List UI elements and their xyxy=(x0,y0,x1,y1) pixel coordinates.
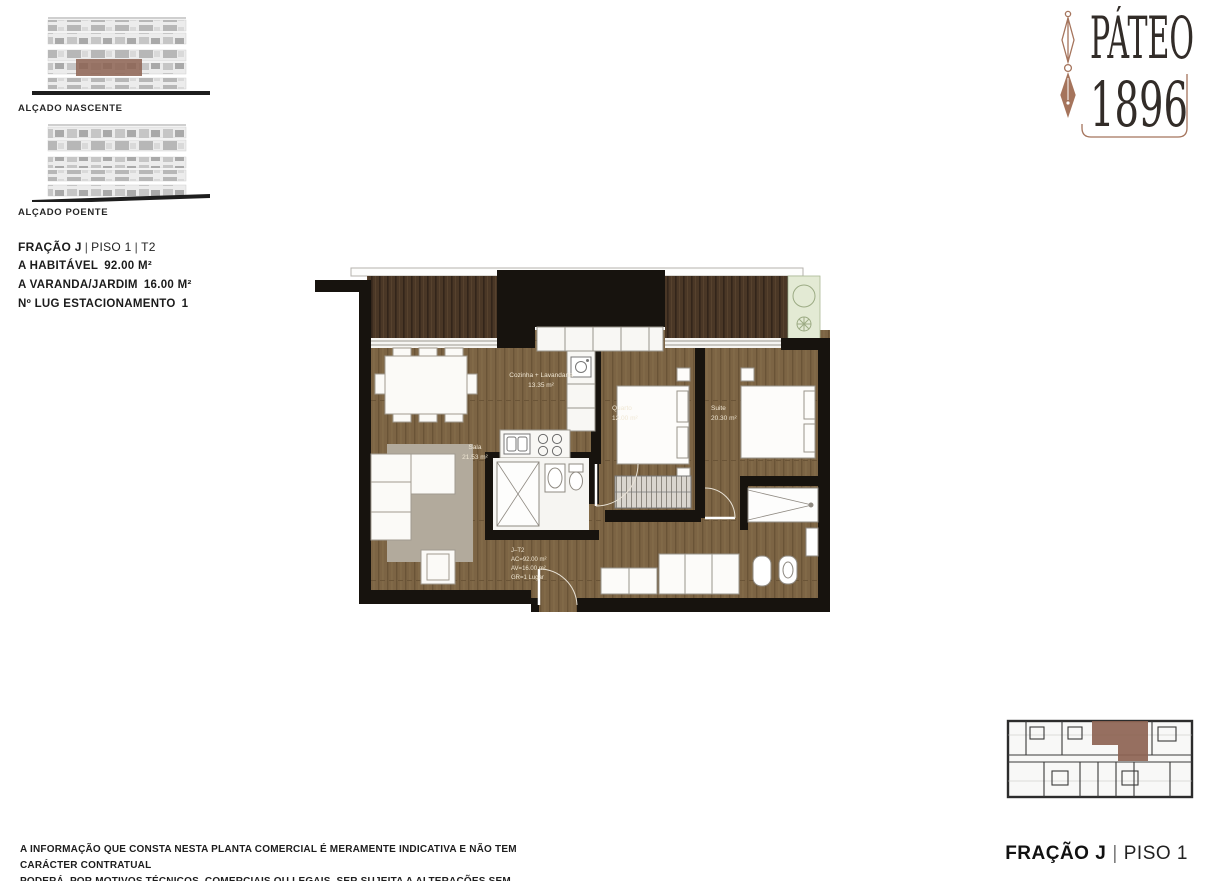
elevation-nascente-label: ALÇADO NASCENTE xyxy=(18,103,228,114)
suite-toilet-icon xyxy=(779,556,797,584)
floorplan-svg: Cozinha + Lavandaria 13.35 m² Sala 21.53… xyxy=(315,262,835,612)
chair xyxy=(375,374,385,394)
wardrobe xyxy=(615,476,691,508)
svg-text:GR=1 Lugar: GR=1 Lugar xyxy=(511,575,544,581)
room-area-bedroom: 12.00 m² xyxy=(612,415,638,422)
stat-parking: Nº LUG ESTACIONAMENTO1 xyxy=(18,295,192,314)
kitchen-sink-icon xyxy=(504,434,530,454)
sliding-door-living xyxy=(367,338,497,348)
svg-text:J–T2: J–T2 xyxy=(511,548,525,554)
svg-text:AC=92.00 m²: AC=92.00 m² xyxy=(511,557,547,563)
unit-floor: PISO 1 xyxy=(91,240,131,254)
elevation-poente-label: ALÇADO POENTE xyxy=(18,207,228,218)
deck-right xyxy=(665,276,788,344)
pillow xyxy=(677,391,688,422)
brand-logo-svg: PÁTEO 1896 xyxy=(1050,6,1200,151)
room-label-bedroom: Quarto xyxy=(612,405,632,412)
stat-value: 92.00 M² xyxy=(104,260,152,272)
keyplan-svg xyxy=(1000,705,1200,817)
stat-value: 1 xyxy=(182,298,189,310)
suite-shower xyxy=(748,488,818,522)
brand-logo: PÁTEO 1896 xyxy=(1050,6,1200,156)
elevation-poente-drawing xyxy=(18,116,218,202)
shower xyxy=(497,462,539,526)
room-area-living: 21.53 m² xyxy=(462,454,488,461)
dining-table-set xyxy=(375,348,477,422)
disclaimer-line2: PODERÁ, POR MOTIVOS TÉCNICOS, COMERCIAIS… xyxy=(20,874,540,881)
toilet-icon xyxy=(569,464,583,490)
sliding-door-bedrooms xyxy=(665,338,788,348)
dining-table xyxy=(385,356,467,414)
stat-habitable: A HABITÁVEL92.00 M² xyxy=(18,257,192,276)
keyplan xyxy=(1000,705,1200,822)
pen-nib-icon xyxy=(1061,11,1075,116)
brochure-page: ALÇADO NASCENTE ALÇADO POENTE FRAÇÃO J|P xyxy=(0,0,1210,881)
floorplan: Cozinha + Lavandaria 13.35 m² Sala 21.53… xyxy=(315,262,835,617)
stat-label: A VARANDA/JARDIM xyxy=(18,279,138,291)
unit-info-block: FRAÇÃO J|PISO 1|T2 A HABITÁVEL92.00 M² A… xyxy=(18,238,192,314)
ground-line xyxy=(32,91,210,95)
deck-left xyxy=(367,276,497,344)
elevation-floors xyxy=(48,20,186,89)
planter-garden xyxy=(788,276,820,344)
pillow xyxy=(804,391,815,419)
nightstand xyxy=(741,368,754,381)
svg-text:AV=16.00 m²: AV=16.00 m² xyxy=(511,566,546,572)
highlighted-unit-marker xyxy=(76,59,142,76)
unit-typology: T2 xyxy=(141,240,156,254)
elevation-nascente-drawing xyxy=(18,12,218,98)
bathroom-sink-icon xyxy=(545,464,565,492)
suite-sink-icon xyxy=(753,556,771,586)
room-label-living: Sala xyxy=(468,444,481,451)
disclaimer-line1: A INFORMAÇÃO QUE CONSTA NESTA PLANTA COM… xyxy=(20,842,540,874)
disclaimer: A INFORMAÇÃO QUE CONSTA NESTA PLANTA COM… xyxy=(20,842,540,881)
bath-cabinet xyxy=(806,528,818,556)
stat-label: A HABITÁVEL xyxy=(18,260,98,272)
room-label-suite: Suite xyxy=(711,405,726,412)
unit-fraction: FRAÇÃO J xyxy=(18,240,82,254)
chair xyxy=(467,374,477,394)
logo-year: 1896 xyxy=(1090,68,1188,141)
sofa-chaise xyxy=(411,454,455,494)
room-area-suite: 20.30 m² xyxy=(711,415,737,422)
nightstand xyxy=(677,368,690,381)
elevation-floors xyxy=(48,127,186,196)
oven-icon xyxy=(571,357,591,377)
footer-fraction: FRAÇÃO J|PISO 1 xyxy=(1005,843,1188,865)
stat-value: 16.00 M² xyxy=(144,279,192,291)
elevation-nascente: ALÇADO NASCENTE xyxy=(18,12,228,114)
unit-title: FRAÇÃO J|PISO 1|T2 xyxy=(18,238,192,257)
pillow xyxy=(677,427,688,458)
flower-plant-icon xyxy=(797,317,811,331)
stat-label: Nº LUG ESTACIONAMENTO xyxy=(18,298,176,310)
footer-floor: PISO 1 xyxy=(1124,843,1188,864)
stat-varanda: A VARANDA/JARDIM16.00 M² xyxy=(18,276,192,295)
room-label-kitchen: Cozinha + Lavandaria xyxy=(509,372,573,379)
armchair xyxy=(421,550,455,584)
room-area-kitchen: 13.35 m² xyxy=(528,382,554,389)
pillow xyxy=(804,424,815,452)
footer-fraction-name: FRAÇÃO J xyxy=(1005,843,1106,864)
elevation-poente: ALÇADO POENTE xyxy=(18,116,228,218)
logo-word: PÁTEO xyxy=(1090,6,1194,72)
